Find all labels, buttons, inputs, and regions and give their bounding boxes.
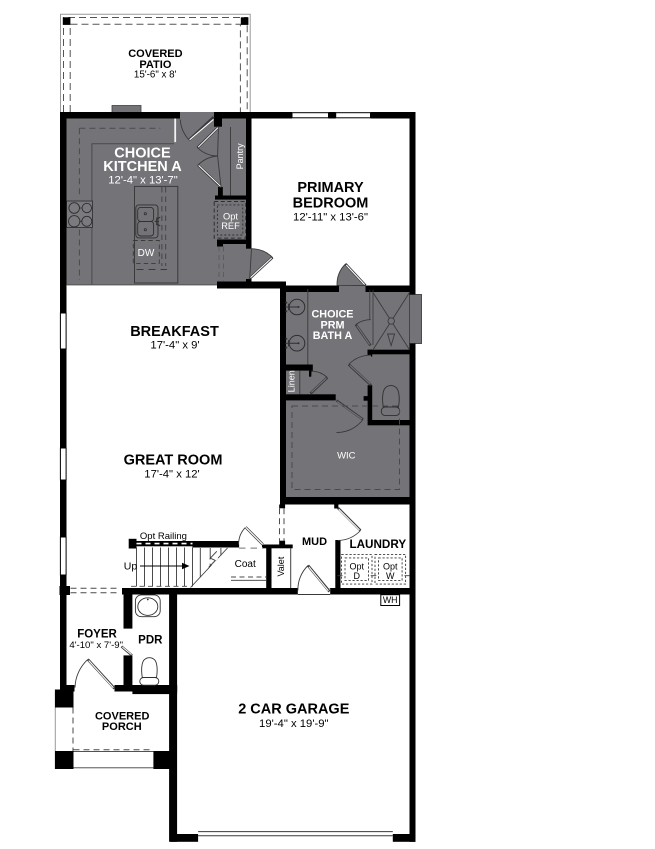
svg-text:12'-4" x 13'-7": 12'-4" x 13'-7" bbox=[108, 175, 177, 187]
svg-text:Valet: Valet bbox=[276, 556, 286, 576]
svg-text:MUD: MUD bbox=[302, 536, 327, 548]
svg-text:W: W bbox=[386, 571, 395, 581]
svg-text:PRIMARY: PRIMARY bbox=[297, 180, 364, 196]
svg-text:Opt: Opt bbox=[349, 561, 364, 571]
svg-text:Linen: Linen bbox=[287, 370, 297, 392]
svg-text:Opt Railing: Opt Railing bbox=[140, 531, 187, 542]
svg-text:REF: REF bbox=[221, 221, 240, 231]
svg-text:2 CAR GARAGE: 2 CAR GARAGE bbox=[238, 702, 350, 718]
svg-text:BEDROOM: BEDROOM bbox=[293, 195, 369, 211]
svg-text:KITCHEN A: KITCHEN A bbox=[103, 159, 182, 175]
svg-text:WH: WH bbox=[383, 595, 398, 605]
svg-text:BREAKFAST: BREAKFAST bbox=[130, 324, 219, 340]
svg-text:Opt: Opt bbox=[223, 211, 238, 221]
svg-text:Coat: Coat bbox=[235, 559, 256, 570]
svg-text:BATH A: BATH A bbox=[313, 330, 353, 342]
svg-text:WIC: WIC bbox=[337, 451, 356, 462]
svg-text:DW: DW bbox=[138, 248, 155, 259]
svg-text:Opt: Opt bbox=[383, 561, 398, 571]
svg-text:15'-6" x 8': 15'-6" x 8' bbox=[134, 70, 177, 81]
svg-text:Up: Up bbox=[124, 561, 138, 573]
svg-text:PDR: PDR bbox=[138, 635, 163, 647]
svg-text:17'-4" x 9': 17'-4" x 9' bbox=[150, 340, 199, 352]
svg-text:12'-11" x 13'-6": 12'-11" x 13'-6" bbox=[293, 212, 368, 224]
svg-text:17'-4" x 12': 17'-4" x 12' bbox=[144, 469, 199, 481]
svg-text:19'-4" x 19'-9": 19'-4" x 19'-9" bbox=[259, 718, 328, 730]
svg-text:D: D bbox=[353, 571, 360, 581]
svg-text:LAUNDRY: LAUNDRY bbox=[349, 538, 406, 551]
svg-text:PORCH: PORCH bbox=[102, 721, 142, 733]
svg-text:Pantry: Pantry bbox=[235, 143, 245, 170]
svg-text:GREAT ROOM: GREAT ROOM bbox=[124, 453, 223, 469]
svg-text:4'-10" x 7'-9": 4'-10" x 7'-9" bbox=[69, 640, 123, 651]
